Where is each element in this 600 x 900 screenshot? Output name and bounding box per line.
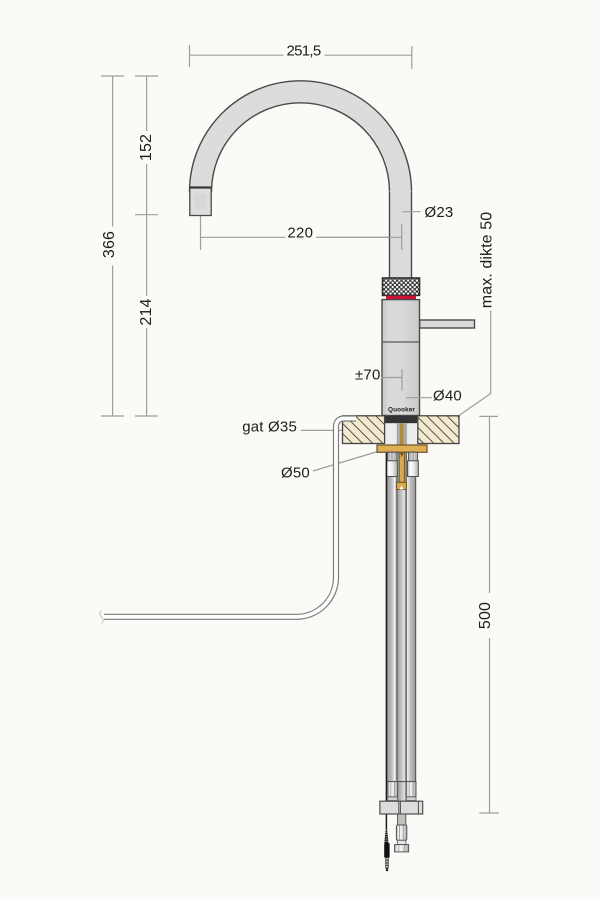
svg-text:±70: ±70: [355, 366, 381, 383]
svg-text:Ø40: Ø40: [433, 387, 462, 404]
svg-text:Quooker: Quooker: [388, 406, 415, 413]
svg-text:220: 220: [287, 225, 313, 242]
svg-text:max. dikte 50: max. dikte 50: [479, 212, 496, 308]
svg-text:Ø23: Ø23: [425, 204, 454, 221]
svg-text:500: 500: [477, 602, 494, 629]
svg-text:152: 152: [138, 134, 155, 161]
svg-text:gat Ø35: gat Ø35: [242, 418, 297, 435]
svg-text:214: 214: [138, 298, 155, 325]
svg-text:251,5: 251,5: [286, 42, 320, 59]
svg-text:366: 366: [101, 231, 118, 258]
svg-text:Ø50: Ø50: [281, 464, 310, 481]
